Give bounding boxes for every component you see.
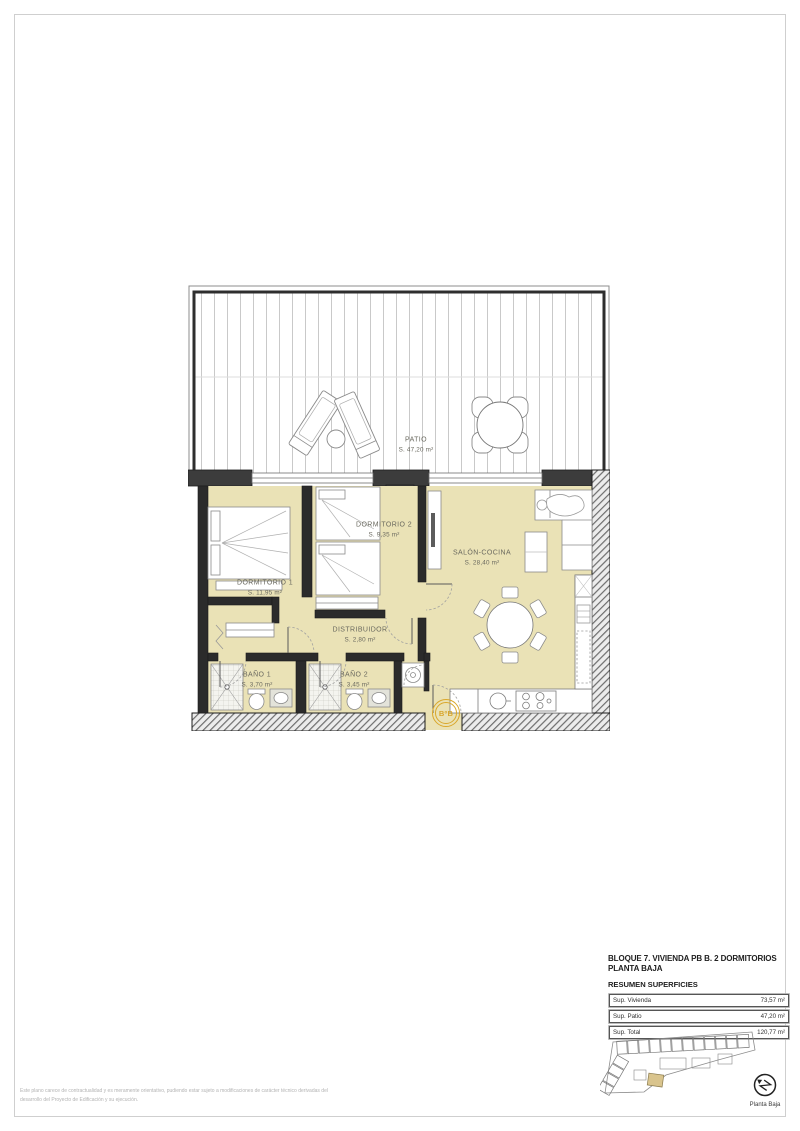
room-name: BAÑO 1 bbox=[241, 669, 272, 680]
room-name: DORMITORIO 1 bbox=[237, 577, 293, 588]
disclaimer-line-2: desarrollo del Proyecto de Edificación y… bbox=[20, 1096, 370, 1105]
toilet-icon bbox=[248, 689, 265, 710]
room-label-bano-1: BAÑO 1 S. 3,70 m² bbox=[241, 669, 272, 690]
room-label-patio: PATIO S. 47,20 m² bbox=[399, 434, 434, 455]
room-label-dormitorio-1: DORMITORIO 1 S. 11,95 m² bbox=[237, 577, 293, 598]
washbasin-icon bbox=[368, 689, 390, 707]
coffee-table-icon bbox=[525, 532, 547, 572]
room-label-salon-cocina: SALÓN-COCINA S. 28,40 m² bbox=[453, 547, 511, 568]
room-area: S. 11,95 m² bbox=[237, 589, 293, 599]
disclaimer-line-1: Este plano carece de contractualidad y e… bbox=[20, 1087, 370, 1096]
patio-dining-set-icon bbox=[472, 397, 528, 453]
room-area: S. 2,80 m² bbox=[333, 636, 388, 646]
key-plan-caption: Planta Baja bbox=[738, 1102, 792, 1108]
room-name: PATIO bbox=[399, 434, 434, 445]
floor-plan-drawing bbox=[188, 285, 610, 731]
room-area: S. 28,40 m² bbox=[453, 559, 511, 569]
key-plan-highlight bbox=[647, 1073, 664, 1087]
sheet-title-line-1: BLOQUE 7. VIVIENDA PB B. 2 DORMITORIOS bbox=[608, 954, 790, 964]
row-value: 47,20 m² bbox=[761, 1013, 785, 1020]
floor-plan: PATIO S. 47,20 m² DORMITORIO 1 S. 11,95 … bbox=[188, 285, 610, 731]
key-plan bbox=[600, 1030, 762, 1100]
row-value: 73,57 m² bbox=[761, 997, 785, 1004]
shower-icon bbox=[309, 664, 341, 710]
fridge-icon bbox=[575, 575, 592, 597]
room-name: SALÓN-COCINA bbox=[453, 547, 511, 558]
room-area: S. 47,20 m² bbox=[399, 446, 434, 456]
side-table-icon bbox=[327, 430, 345, 448]
row-label: Sup. Vivienda bbox=[613, 997, 651, 1004]
sink-icon bbox=[490, 693, 506, 709]
room-area: S. 3,70 m² bbox=[241, 681, 272, 691]
single-beds-icon bbox=[316, 487, 380, 609]
row-label: Sup. Patio bbox=[613, 1013, 642, 1020]
room-name: DISTRIBUIDOR bbox=[333, 624, 388, 635]
room-area: S. 3,45 m² bbox=[338, 681, 369, 691]
room-label-dormitorio-2: DORMITORIO 2 S. 9,35 m² bbox=[356, 519, 412, 540]
room-area: S. 9,35 m² bbox=[356, 531, 412, 541]
tv-unit-icon bbox=[428, 491, 441, 569]
table-row: Sup. Vivienda 73,57 m² bbox=[609, 994, 789, 1007]
title-block: BLOQUE 7. VIVIENDA PB B. 2 DORMITORIOS P… bbox=[608, 954, 790, 1042]
north-compass-icon bbox=[752, 1072, 778, 1098]
entrance-badge-label: BºB bbox=[439, 709, 453, 718]
stove-icon bbox=[516, 691, 556, 711]
room-name: DORMITORIO 2 bbox=[356, 519, 412, 530]
sheet-title-line-2: PLANTA BAJA bbox=[608, 964, 790, 974]
room-label-distribuidor: DISTRIBUIDOR S. 2,80 m² bbox=[333, 624, 388, 645]
disclaimer: Este plano carece de contractualidad y e… bbox=[20, 1087, 370, 1105]
washing-machine-icon bbox=[402, 663, 424, 687]
toilet-icon bbox=[346, 689, 363, 710]
table-row: Sup. Patio 47,20 m² bbox=[609, 1010, 789, 1023]
shower-icon bbox=[211, 664, 243, 710]
room-label-bano-2: BAÑO 2 S. 3,45 m² bbox=[338, 669, 369, 690]
room-name: BAÑO 2 bbox=[338, 669, 369, 680]
entrance-badge: BºB bbox=[432, 699, 460, 727]
washbasin-icon bbox=[270, 689, 292, 707]
surfaces-heading: RESUMEN SUPERFICIES bbox=[608, 980, 790, 989]
